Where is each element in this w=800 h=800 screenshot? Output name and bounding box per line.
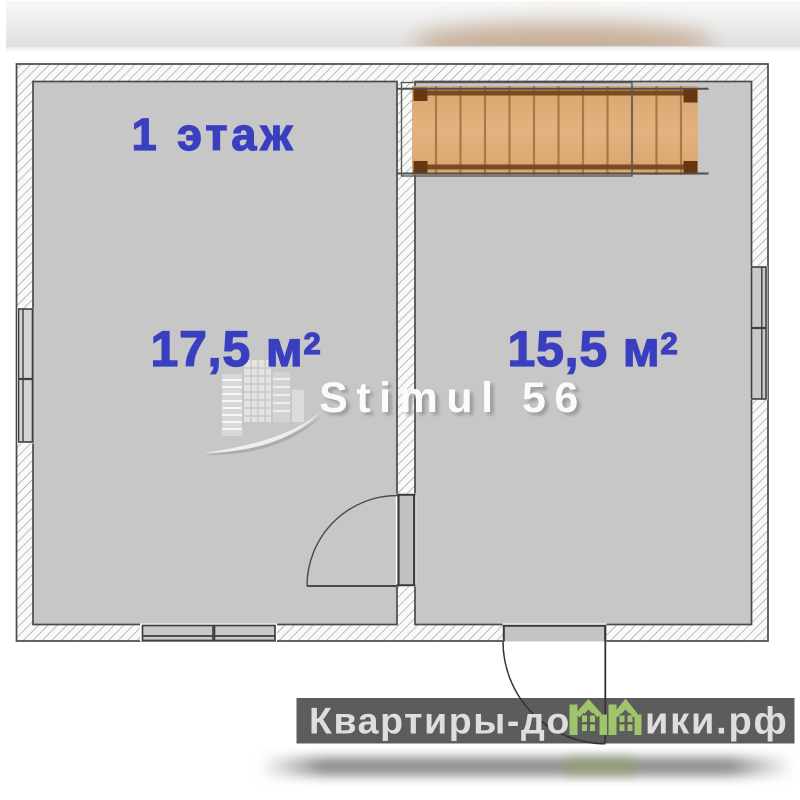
svg-text:Квартиры-до: Квартиры-до (309, 700, 571, 742)
svg-text:1 этаж: 1 этаж (132, 109, 297, 160)
svg-text:17,5 м2: 17,5 м2 (150, 321, 321, 377)
svg-text:ики.рф: ики.рф (645, 701, 789, 743)
svg-text:15,5 м2: 15,5 м2 (507, 321, 678, 377)
svg-text:Stimul 56: Stimul 56 (319, 374, 587, 422)
